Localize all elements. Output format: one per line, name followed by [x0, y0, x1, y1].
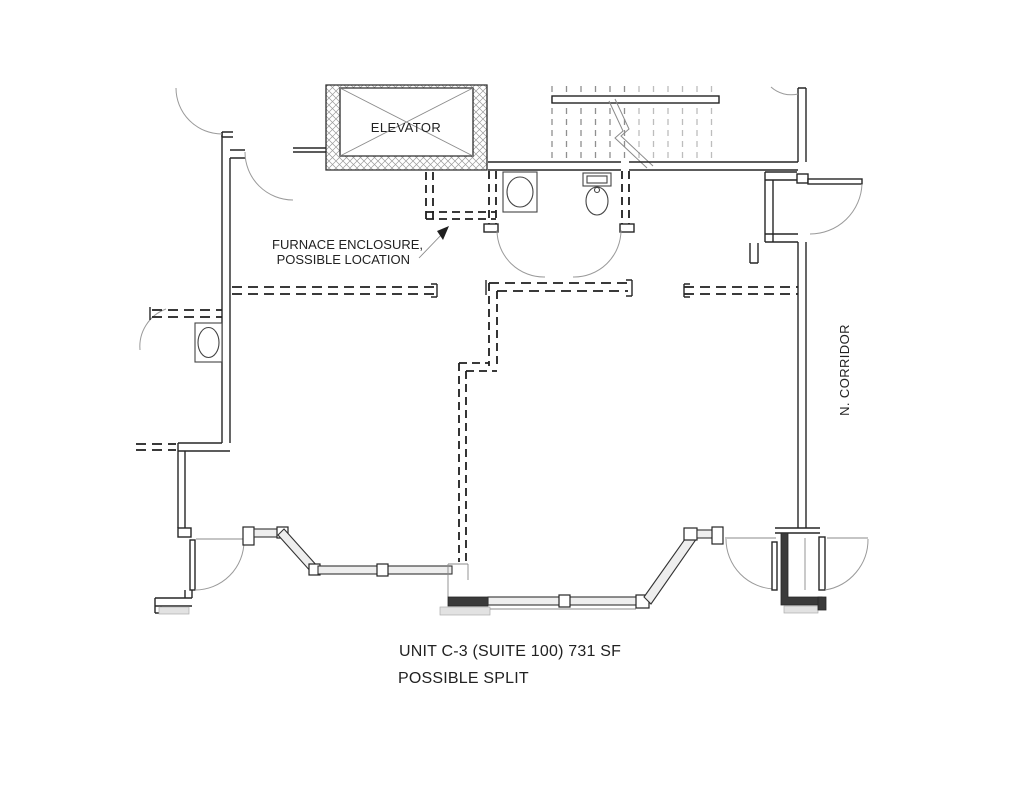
storefront — [190, 527, 777, 615]
door-jamb — [178, 528, 191, 537]
door-swing-arc — [810, 184, 862, 234]
door-jamb — [797, 174, 808, 183]
door-leaf — [819, 537, 825, 590]
door-leaf — [808, 179, 862, 184]
door-swing-arc — [573, 230, 621, 277]
restroom — [484, 171, 634, 277]
floor-plan-sheet: ELEVATOR — [0, 0, 1024, 791]
stair-run — [552, 86, 719, 168]
corridor-label: N. CORRIDOR — [837, 324, 852, 416]
window — [697, 530, 713, 538]
wall-cap — [620, 224, 634, 232]
wall-pier — [818, 597, 826, 610]
window-mullion — [684, 528, 697, 540]
unit-title-line2: POSSIBLE SPLIT — [398, 670, 529, 687]
furnace-note-line2: POSSIBLE LOCATION — [277, 252, 410, 267]
restroom-toilet — [583, 173, 611, 215]
door-swing-arc — [245, 152, 293, 200]
sill — [784, 606, 818, 613]
door-leaf — [190, 540, 195, 590]
sill — [159, 607, 189, 614]
door-swing-arc — [825, 539, 868, 590]
restroom-sink — [503, 172, 537, 212]
door-swing-arc — [726, 539, 775, 589]
furnace-enclosure: FURNACE ENCLOSURE, POSSIBLE LOCATION — [272, 172, 496, 267]
door-swing-arc — [771, 87, 798, 95]
unit-title-line1: UNIT C-3 (SUITE 100) 731 SF — [399, 643, 621, 660]
window-mullion — [243, 527, 254, 545]
neighbor-space — [136, 307, 222, 450]
furnace-note-line1: FURNACE ENCLOSURE, — [272, 237, 423, 252]
elevator-shaft: ELEVATOR — [326, 85, 487, 170]
window-mullion — [712, 527, 723, 544]
stair-handrail — [552, 96, 719, 103]
door-swing-arc — [176, 88, 222, 134]
neighbor-sink — [195, 323, 222, 362]
window-mullion — [377, 564, 388, 576]
possible-split-walls — [232, 280, 798, 562]
door-leaf — [772, 542, 777, 590]
vestibule-wall — [781, 533, 822, 605]
door-swing-arc — [140, 309, 166, 350]
doors — [140, 87, 862, 350]
elevator-label: ELEVATOR — [371, 120, 441, 135]
window-mullion — [559, 595, 570, 607]
window-angled — [644, 532, 697, 604]
sill — [440, 607, 490, 615]
door-swing-arc — [195, 541, 244, 590]
floor-plan-drawing: ELEVATOR — [0, 0, 1024, 791]
wall-cap — [484, 224, 498, 232]
stair-break-line — [609, 99, 653, 168]
wall-pier — [448, 597, 488, 606]
entry-vestibule — [775, 528, 868, 613]
door-swing-arc — [497, 230, 545, 277]
